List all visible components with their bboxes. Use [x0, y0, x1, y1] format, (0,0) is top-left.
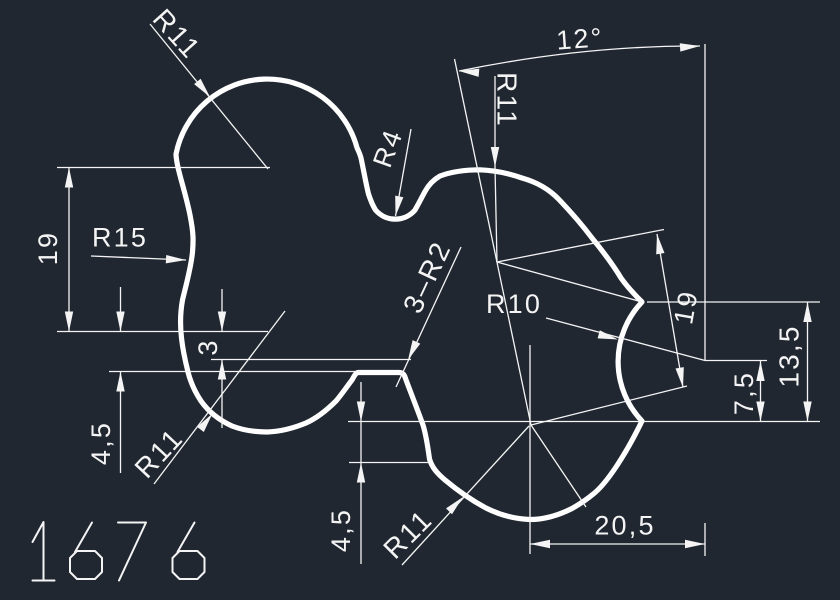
svg-text:19: 19: [668, 287, 704, 326]
svg-text:4,5: 4,5: [326, 508, 356, 552]
svg-text:R10: R10: [486, 289, 542, 319]
svg-text:19: 19: [33, 231, 63, 265]
svg-text:R11: R11: [492, 72, 523, 128]
svg-text:20,5: 20,5: [594, 511, 655, 541]
svg-text:12°: 12°: [555, 22, 604, 55]
svg-text:4,5: 4,5: [86, 421, 116, 465]
svg-text:7,5: 7,5: [729, 371, 759, 415]
svg-text:13,5: 13,5: [774, 324, 805, 387]
svg-text:R15: R15: [92, 223, 148, 253]
svg-text:3: 3: [193, 338, 223, 355]
